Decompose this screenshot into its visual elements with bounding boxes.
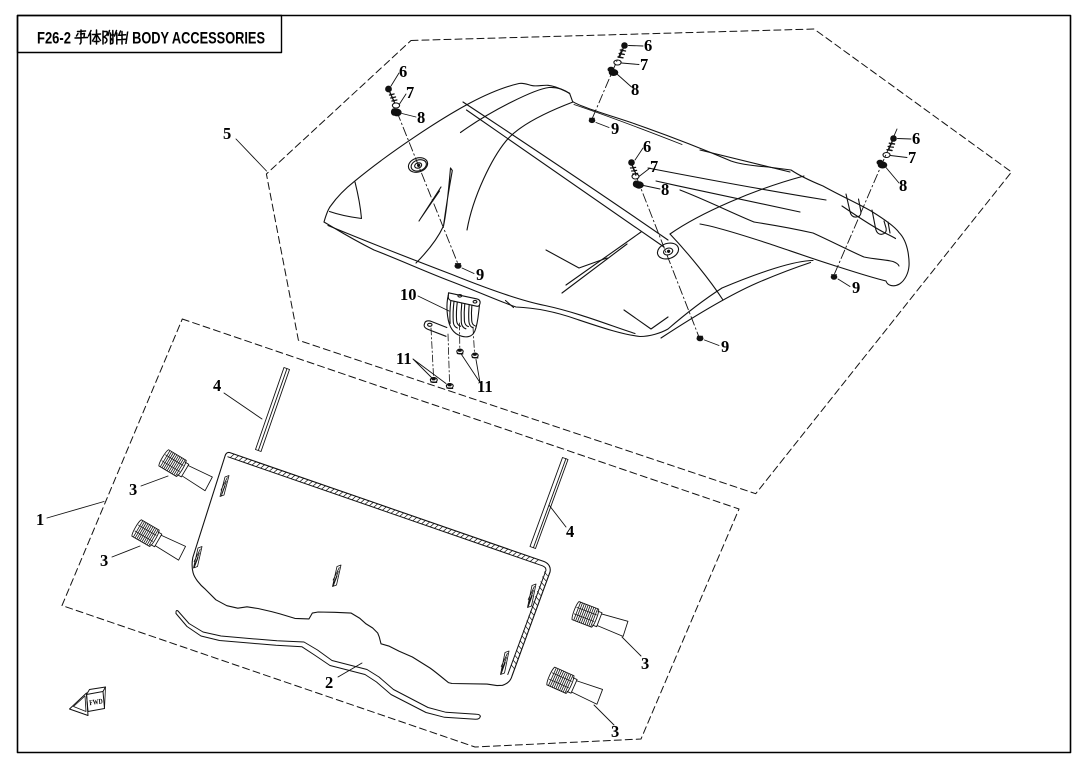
svg-text:9: 9 [852, 278, 860, 297]
svg-text:3: 3 [611, 722, 619, 741]
svg-text:6: 6 [644, 36, 652, 55]
svg-text:7: 7 [650, 157, 658, 176]
svg-text:7: 7 [640, 55, 648, 74]
svg-text:10: 10 [400, 285, 417, 304]
svg-text:4: 4 [566, 522, 574, 541]
svg-text:5: 5 [223, 124, 231, 143]
svg-text:FWD: FWD [89, 696, 104, 707]
svg-text:F26-2: F26-2 [37, 29, 71, 48]
svg-text:8: 8 [661, 180, 669, 199]
svg-text:1: 1 [36, 510, 44, 529]
svg-text:9: 9 [611, 119, 619, 138]
svg-text:8: 8 [631, 80, 639, 99]
svg-text:8: 8 [417, 108, 425, 127]
svg-text:9: 9 [721, 337, 729, 356]
svg-text:2: 2 [325, 673, 333, 692]
svg-text:4: 4 [213, 376, 221, 395]
svg-text:11: 11 [396, 349, 412, 368]
svg-text:3: 3 [129, 480, 137, 499]
svg-text:9: 9 [476, 265, 484, 284]
svg-text:6: 6 [912, 129, 920, 148]
svg-text:7: 7 [406, 83, 414, 102]
svg-text:3: 3 [100, 551, 108, 570]
svg-text:6: 6 [643, 137, 651, 156]
svg-text:3: 3 [641, 654, 649, 673]
svg-text:8: 8 [899, 176, 907, 195]
svg-text:7: 7 [908, 148, 916, 167]
svg-text:/ BODY ACCESSORIES: / BODY ACCESSORIES [125, 29, 265, 48]
svg-text:6: 6 [399, 62, 407, 81]
